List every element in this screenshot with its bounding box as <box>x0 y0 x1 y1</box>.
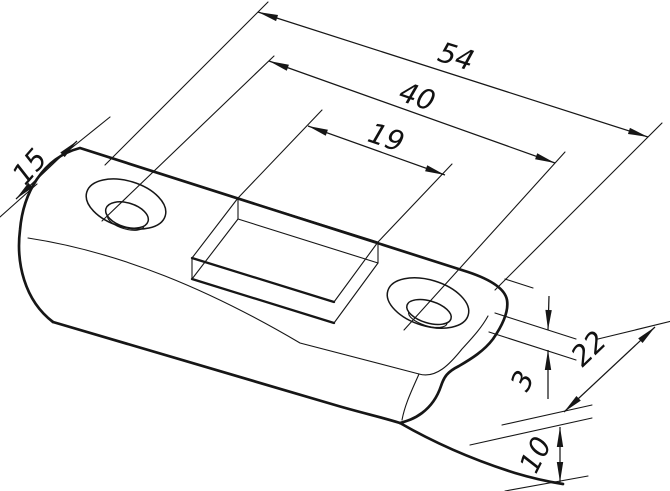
plate-front-bottom-edge <box>53 322 400 423</box>
ext-line-3-bottom <box>489 332 576 360</box>
front-fold-line <box>28 238 419 374</box>
hole1-centerline <box>102 56 274 221</box>
rectangular-cutout <box>192 198 378 323</box>
plate-silhouette-back-and-lip <box>19 148 507 423</box>
ext-line-22-top <box>598 321 670 339</box>
dim-line-3-upper <box>548 296 549 330</box>
dim-label-lip-offset: 3 <box>504 365 541 396</box>
ext-line-22-bottom <box>502 405 592 425</box>
extension-lines <box>0 2 670 491</box>
plate-thin-edges <box>28 238 488 420</box>
dimension-labels: 54 40 19 15 22 3 10 <box>5 35 612 478</box>
dim-label-hole-edge-offset: 15 <box>5 142 53 191</box>
ext-line-10-bottom <box>505 476 588 491</box>
screw-hole-left <box>80 170 172 238</box>
hole1-cone-arc <box>105 215 144 234</box>
cutout-inner-back-edge <box>238 219 378 263</box>
technical-drawing-canvas: 54 40 19 15 22 3 10 <box>0 0 670 491</box>
dim-label-overall-width: 22 <box>564 324 613 372</box>
dim-label-overall-length: 54 <box>434 35 478 77</box>
ext-line-3-top <box>495 313 576 339</box>
dim-label-lip-height: 10 <box>513 431 559 478</box>
lip-inner-curve <box>419 316 488 375</box>
cutout-inner-front-edge <box>192 279 334 323</box>
ext-line-19-left <box>238 110 322 198</box>
ext-tick-15-top <box>64 117 110 154</box>
dim-label-hole-spacing: 40 <box>395 75 439 118</box>
dim-label-cutout-length: 19 <box>364 116 408 159</box>
lip-top-edge-stub <box>505 279 533 288</box>
cutout-front-edge <box>192 258 334 302</box>
dimension-lines <box>16 12 655 482</box>
plate-outline <box>19 148 563 484</box>
hole2-centerline <box>404 152 565 330</box>
ext-line-19-right <box>378 164 452 242</box>
dim-line-54 <box>258 12 648 137</box>
lip-fold-s-curve <box>402 374 419 420</box>
hole1-bore <box>102 197 151 233</box>
strike-plate-drawing: 54 40 19 15 22 3 10 <box>0 0 670 491</box>
ext-line-54-right <box>495 123 662 290</box>
